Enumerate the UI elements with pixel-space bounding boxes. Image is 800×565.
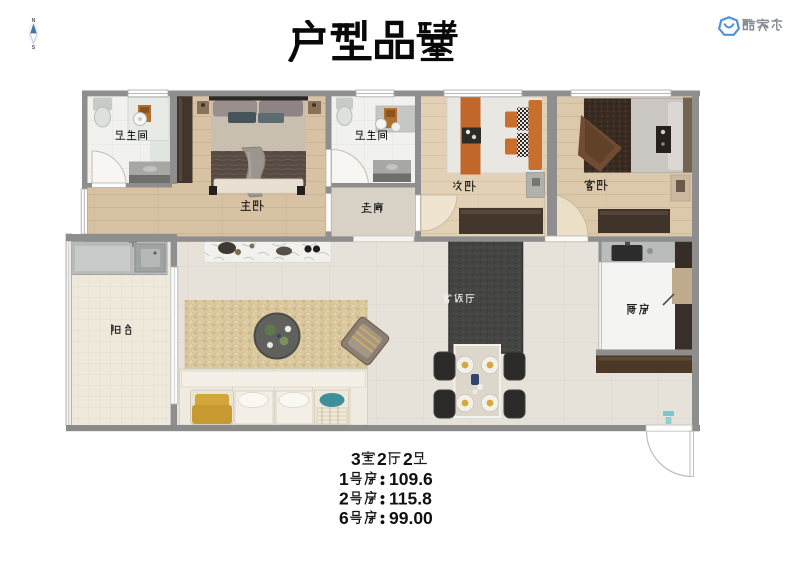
svg-text:N: N [32, 18, 36, 24]
svg-text:109.6: 109.6 [389, 469, 433, 489]
svg-text:3: 3 [351, 449, 361, 469]
svg-text:1: 1 [339, 469, 349, 489]
svg-text:115.8: 115.8 [389, 489, 432, 509]
svg-text:S: S [32, 45, 36, 51]
svg-text:2: 2 [403, 449, 413, 469]
svg-text:6: 6 [339, 508, 349, 528]
svg-text:99.00: 99.00 [389, 508, 433, 528]
svg-text:2: 2 [377, 449, 387, 469]
svg-text:2: 2 [339, 489, 349, 509]
